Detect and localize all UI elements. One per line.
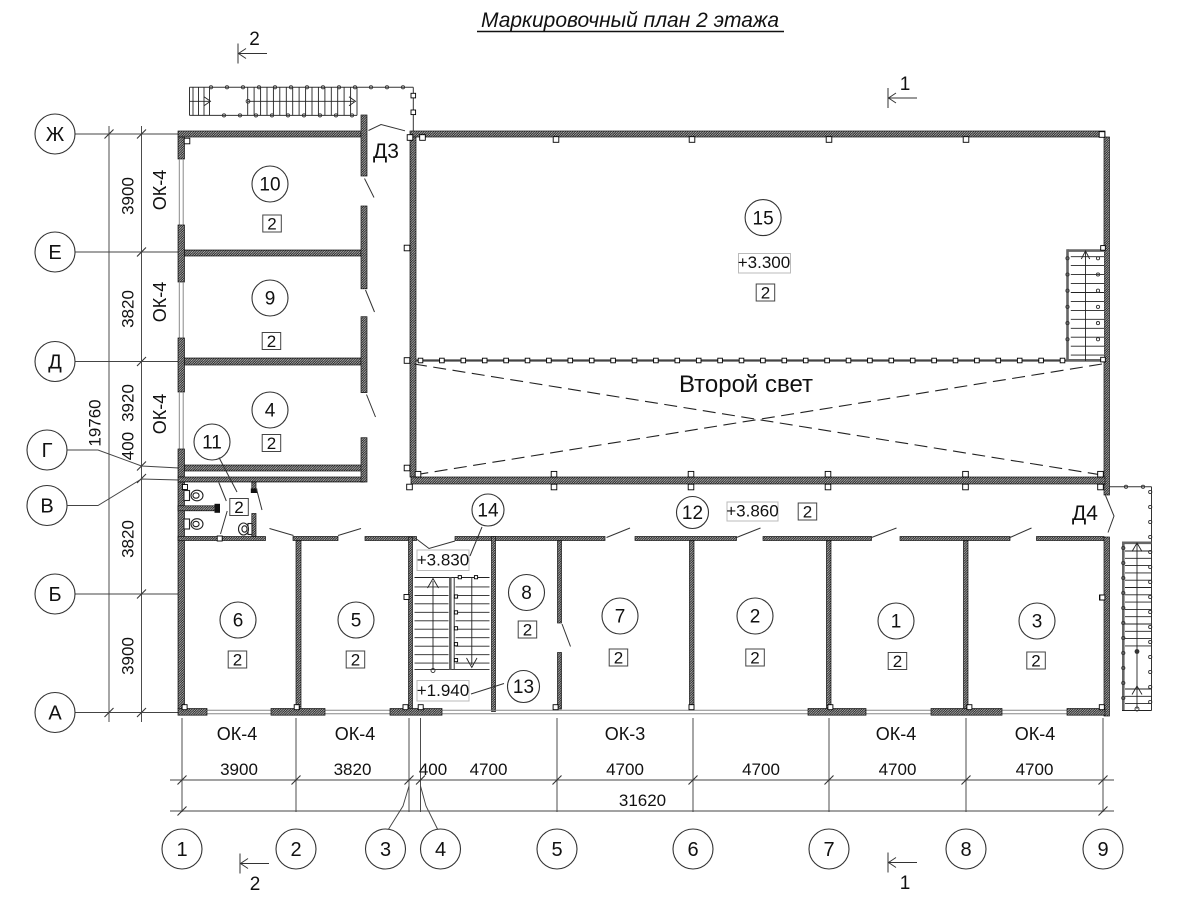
svg-text:3820: 3820 (119, 290, 138, 328)
svg-text:Г: Г (42, 440, 53, 462)
svg-text:Б: Б (48, 584, 61, 606)
svg-text:2: 2 (267, 214, 276, 233)
svg-text:13: 13 (513, 677, 534, 698)
svg-text:2: 2 (249, 29, 260, 50)
svg-text:400: 400 (119, 432, 138, 460)
svg-text:ОК-3: ОК-3 (605, 724, 646, 744)
svg-text:1: 1 (900, 873, 911, 894)
svg-text:12: 12 (682, 503, 703, 524)
svg-text:2: 2 (1031, 651, 1040, 670)
svg-text:Д: Д (48, 352, 62, 374)
svg-text:3900: 3900 (119, 637, 138, 675)
svg-text:4700: 4700 (879, 760, 917, 779)
svg-text:400: 400 (419, 760, 447, 779)
svg-text:5: 5 (351, 611, 362, 632)
svg-text:2: 2 (234, 498, 243, 517)
svg-text:6: 6 (687, 839, 698, 861)
svg-text:6: 6 (233, 611, 244, 632)
svg-text:7: 7 (615, 607, 626, 628)
svg-text:1: 1 (900, 74, 911, 95)
svg-text:2: 2 (250, 874, 261, 895)
svg-text:9: 9 (1097, 839, 1108, 861)
svg-text:3820: 3820 (334, 760, 372, 779)
svg-text:4700: 4700 (606, 760, 644, 779)
svg-text:Ж: Ж (46, 124, 65, 146)
svg-text:2: 2 (803, 502, 812, 521)
svg-text:3: 3 (1032, 612, 1043, 633)
svg-text:1: 1 (176, 839, 187, 861)
svg-text:ОК-4: ОК-4 (150, 394, 170, 435)
svg-text:4: 4 (265, 401, 276, 422)
svg-text:2: 2 (750, 607, 761, 628)
svg-text:3900: 3900 (119, 177, 138, 215)
svg-text:3920: 3920 (119, 384, 138, 422)
svg-text:14: 14 (477, 501, 499, 522)
svg-text:2: 2 (750, 648, 759, 667)
svg-text:2: 2 (761, 283, 770, 302)
svg-text:Д3: Д3 (373, 140, 399, 163)
svg-text:Маркировочный план 2 этажа: Маркировочный план 2 этажа (481, 9, 779, 32)
svg-text:+3.830: +3.830 (417, 551, 469, 570)
svg-text:Д4: Д4 (1072, 502, 1098, 525)
svg-text:ОК-4: ОК-4 (150, 282, 170, 323)
svg-text:+3.300: +3.300 (738, 253, 790, 272)
svg-text:19760: 19760 (86, 399, 105, 446)
svg-text:8: 8 (521, 583, 532, 604)
svg-text:4700: 4700 (1016, 760, 1054, 779)
svg-text:А: А (48, 703, 62, 725)
svg-text:ОК-4: ОК-4 (150, 170, 170, 211)
svg-text:8: 8 (960, 839, 971, 861)
svg-text:3820: 3820 (119, 520, 138, 558)
svg-text:2: 2 (523, 620, 532, 639)
svg-text:15: 15 (753, 208, 774, 229)
svg-text:ОК-4: ОК-4 (1015, 724, 1056, 744)
svg-text:1: 1 (891, 612, 902, 633)
svg-text:7: 7 (823, 839, 834, 861)
svg-text:2: 2 (351, 650, 360, 669)
svg-text:2: 2 (267, 434, 276, 453)
svg-text:31620: 31620 (619, 791, 666, 810)
svg-text:2: 2 (893, 652, 902, 671)
svg-text:2: 2 (614, 648, 623, 667)
svg-text:ОК-4: ОК-4 (876, 724, 917, 744)
svg-text:2: 2 (290, 839, 301, 861)
svg-text:9: 9 (265, 289, 276, 310)
svg-text:4: 4 (435, 839, 446, 861)
svg-text:3900: 3900 (220, 760, 258, 779)
svg-text:ОК-4: ОК-4 (335, 724, 376, 744)
svg-text:+1.940: +1.940 (417, 681, 469, 700)
svg-text:3: 3 (380, 839, 391, 861)
svg-text:2: 2 (233, 650, 242, 669)
svg-text:Е: Е (48, 242, 61, 264)
svg-text:Второй свет: Второй свет (679, 371, 813, 398)
svg-text:11: 11 (202, 433, 222, 454)
svg-text:10: 10 (259, 175, 280, 196)
svg-text:2: 2 (267, 332, 276, 351)
svg-text:5: 5 (551, 839, 562, 861)
svg-text:4700: 4700 (470, 760, 508, 779)
svg-text:В: В (40, 496, 53, 518)
svg-text:ОК-4: ОК-4 (217, 724, 258, 744)
svg-text:4700: 4700 (742, 760, 780, 779)
svg-text:+3.860: +3.860 (726, 502, 778, 521)
